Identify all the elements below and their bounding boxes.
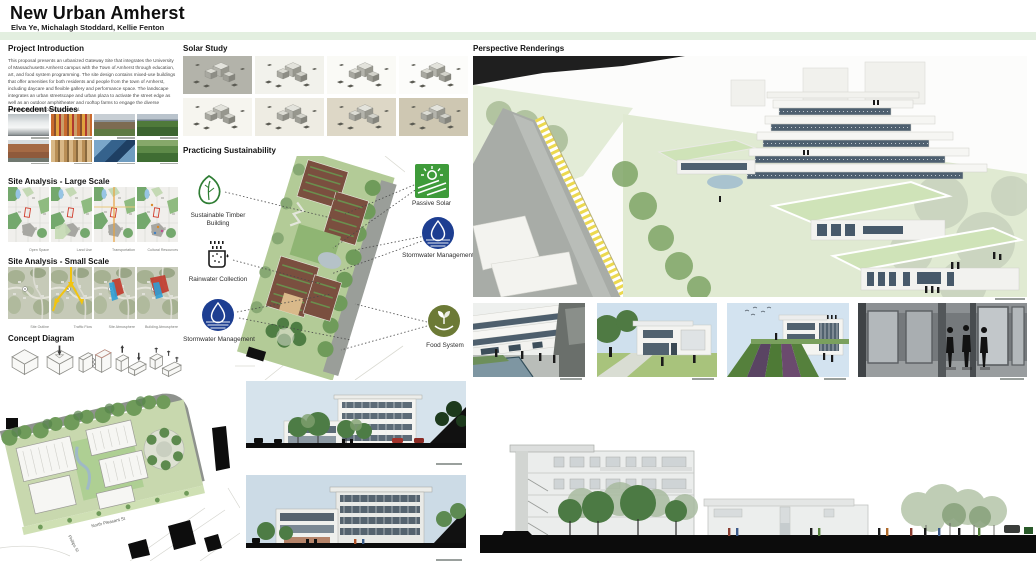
- map-caption: Cultural Resources: [137, 248, 178, 252]
- heading-site-analysis-small: Site Analysis - Small Scale: [8, 257, 109, 266]
- map-land-use: Land Use: [51, 187, 92, 252]
- solar-frame-2: [255, 56, 324, 94]
- caption-bar: [31, 137, 49, 139]
- accent-bar: [0, 32, 1036, 40]
- concept-diagram-row: [8, 344, 182, 378]
- caption-bar: [117, 137, 135, 139]
- aerial-caption: Building Atmosphere: [137, 325, 178, 329]
- solar-frame-5: [183, 98, 252, 136]
- heading-practicing-sustainability: Practicing Sustainability: [183, 146, 276, 155]
- aerial-caption: Traffic Flow: [51, 325, 92, 329]
- precedent-photo-rooftop-farm: [94, 114, 135, 136]
- aerial-traffic-flow: Traffic Flow: [51, 267, 92, 329]
- precedent-photo-glass-facade: [94, 140, 135, 162]
- caption-bar: [436, 463, 462, 465]
- label-sustainable-timber: Sustainable Timber Building: [183, 212, 253, 227]
- heading-project-introduction: Project Introduction: [8, 44, 84, 53]
- caption-bar: [824, 378, 846, 380]
- heading-site-analysis-large: Site Analysis - Large Scale: [8, 177, 110, 186]
- rainwater-icon: [203, 240, 231, 272]
- precedent-grid: [8, 114, 180, 165]
- precedent-photo-museum: [8, 114, 49, 136]
- label-food-system: Food System: [409, 342, 481, 350]
- site-analysis-large-grid: Open Space Land Use Transportation Cultu…: [8, 187, 178, 252]
- label-stormwater-left: Stormwater Management: [183, 336, 255, 344]
- caption-bar: [74, 163, 92, 165]
- heading-solar-study: Solar Study: [183, 44, 227, 53]
- caption-bar: [692, 378, 714, 380]
- concept-sketch-4: [113, 344, 147, 378]
- map-cultural-resources: Cultural Resources: [137, 187, 178, 252]
- leaf-icon: [193, 174, 225, 208]
- precedent-photo-rooftop-garden: [137, 114, 178, 136]
- elevation-render-2: [246, 475, 466, 558]
- stormwater-icon-left: [201, 298, 235, 332]
- elevation-render-1: [246, 381, 466, 461]
- food-system-icon: [427, 304, 461, 338]
- precedent-photo-amphitheater: [137, 140, 178, 162]
- map-open-space: Open Space: [8, 187, 49, 252]
- solar-frame-6: [255, 98, 324, 136]
- aerial-site-atmosphere: Site Atmosphere: [94, 267, 135, 329]
- map-transportation: Transportation: [94, 187, 135, 252]
- render-courtyard: [473, 303, 585, 377]
- concept-sketch-2: [43, 344, 77, 378]
- label-rainwater-collection: Rainwater Collection: [183, 276, 253, 284]
- site-section-drawing: [480, 385, 1036, 561]
- precedent-photo-timber-interior: [51, 140, 92, 162]
- render-interior-lounge: [858, 303, 1027, 377]
- poster-board: New Urban Amherst Elva Ye, Michalagh Sto…: [0, 0, 1036, 561]
- map-caption: Open Space: [8, 248, 49, 252]
- site-analysis-small-grid: Site Outline Traffic Flow Site Atmospher…: [8, 267, 178, 329]
- caption-bar: [436, 559, 462, 561]
- solar-frame-1: [183, 56, 252, 94]
- perspective-render-main: [473, 56, 1027, 297]
- authors: Elva Ye, Michalagh Stoddard, Kellie Fent…: [11, 23, 164, 32]
- precedent-photo-brick-courtyard: [8, 140, 49, 162]
- sustainability-diagram: Sustainable Timber Building Rainwater Co…: [183, 156, 468, 380]
- passive-solar-icon: [415, 164, 449, 198]
- caption-bar: [31, 163, 49, 165]
- stormwater-icon-right: [421, 216, 455, 250]
- caption-bar: [1000, 378, 1024, 380]
- page-title: New Urban Amherst: [10, 3, 185, 24]
- concept-sketch-1: [8, 344, 42, 378]
- aerial-site-outline: Site Outline: [8, 267, 49, 329]
- caption-bar: [117, 163, 135, 165]
- concept-sketch-5: [148, 344, 182, 378]
- caption-bar: [160, 163, 178, 165]
- solar-frame-3: [327, 56, 396, 94]
- map-caption: Transportation: [94, 248, 135, 252]
- caption-bar: [74, 137, 92, 139]
- concept-sketch-3: [78, 344, 112, 378]
- caption-bar: [560, 378, 582, 380]
- aerial-building-atmosphere: Building Atmosphere: [137, 267, 178, 329]
- solar-frame-4: [399, 56, 468, 94]
- heading-precedent-studies: Precedent Studies: [8, 105, 78, 114]
- solar-frame-8: [399, 98, 468, 136]
- render-street-view: [597, 303, 717, 377]
- heading-perspective-renderings: Perspective Renderings: [473, 44, 564, 53]
- aerial-caption: Site Atmosphere: [94, 325, 135, 329]
- render-rooftop-farm: [727, 303, 849, 377]
- aerial-caption: Site Outline: [8, 325, 49, 329]
- solar-study-grid: [183, 56, 471, 136]
- map-caption: Land Use: [51, 248, 92, 252]
- caption-bar: [995, 298, 1025, 300]
- label-passive-solar: Passive Solar: [395, 200, 468, 208]
- label-stormwater-right: Stormwater Management: [401, 252, 475, 260]
- solar-frame-7: [327, 98, 396, 136]
- caption-bar: [160, 137, 178, 139]
- heading-concept-diagram: Concept Diagram: [8, 334, 74, 343]
- ground-floor-site-plan: North Pleasant St Phillips St: [0, 388, 240, 561]
- precedent-photo-timber-facade: [51, 114, 92, 136]
